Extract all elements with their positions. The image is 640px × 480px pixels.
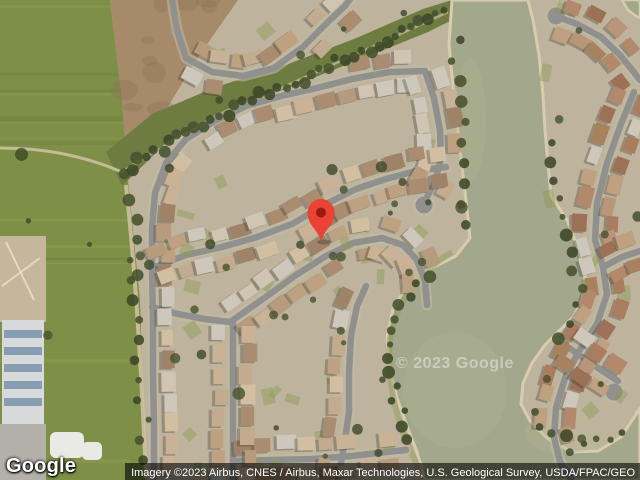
google-watermark: © 2023 Google bbox=[396, 355, 514, 373]
location-pin-icon[interactable] bbox=[298, 185, 344, 245]
attribution-text: Imagery ©2023 Airbus, CNES / Airbus, Max… bbox=[131, 467, 635, 479]
pin-body bbox=[308, 199, 335, 241]
pin-shadow bbox=[317, 240, 331, 245]
pin-dot bbox=[316, 208, 326, 218]
google-logo[interactable]: Google bbox=[6, 455, 76, 478]
map-canvas[interactable]: © 2023 Google Google Imagery ©2023 Airbu… bbox=[0, 0, 640, 480]
attribution-bar: Imagery ©2023 Airbus, CNES / Airbus, Max… bbox=[125, 463, 640, 480]
